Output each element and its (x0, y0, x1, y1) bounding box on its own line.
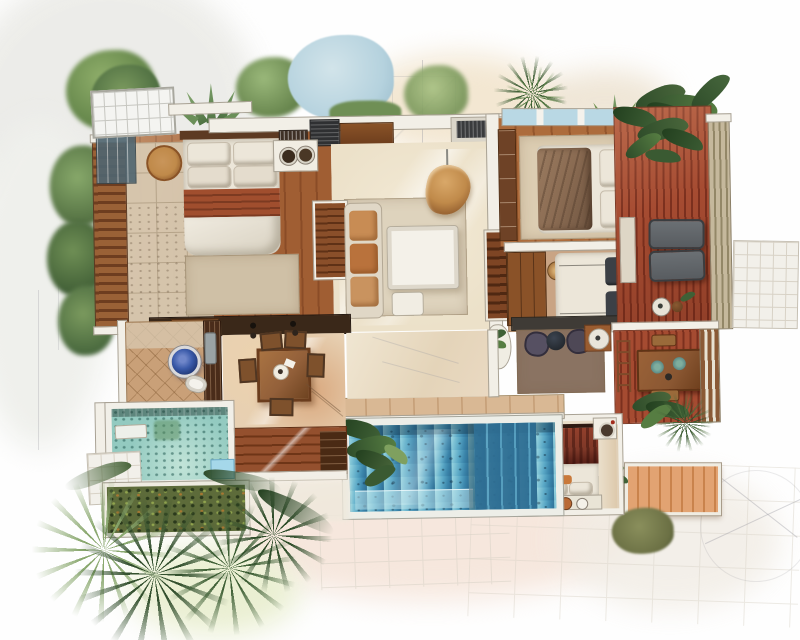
tree (404, 65, 469, 122)
cabana-tap-dot (611, 420, 615, 424)
bed-pillow (187, 166, 231, 189)
plan (0, 0, 800, 640)
bed-duvet (184, 216, 281, 256)
console-knob (250, 323, 256, 329)
ottoman (392, 292, 424, 317)
bedroom2-skylight-band (502, 109, 624, 125)
lounger (649, 219, 705, 249)
ladder-rungs (616, 340, 631, 392)
dining-chair (306, 353, 325, 378)
sofa-cushion (350, 276, 379, 306)
screen-cap (706, 114, 730, 121)
corridor-floor (346, 330, 491, 399)
ceiling-knob (250, 333, 256, 339)
bedroom3-wardrobe (507, 252, 546, 325)
deck-dark-steps (320, 431, 347, 471)
name-plaque (280, 131, 307, 140)
green-mat (154, 420, 180, 440)
slatted-screen (709, 120, 733, 328)
table-bowl (665, 373, 672, 380)
corridor-wall (488, 330, 498, 396)
window-bay (97, 135, 136, 184)
blanket-folds (539, 150, 590, 229)
bed-pillow (233, 165, 277, 188)
louvered-window (313, 201, 348, 280)
coffee-table (386, 225, 459, 290)
dining-table (637, 349, 704, 392)
bed-stripe-blanket (184, 188, 280, 218)
cabana-pillow (569, 482, 593, 496)
ceiling-knob (292, 330, 298, 336)
bed-pillow (187, 142, 231, 167)
table-plate-dot (278, 369, 283, 374)
dining-chair (259, 331, 283, 351)
lounger (649, 249, 706, 282)
side-table-dot (595, 336, 600, 341)
gray-bench (205, 333, 216, 363)
skylight-grid-panel (90, 86, 176, 138)
dining-chair (238, 358, 258, 383)
master-rug (185, 254, 300, 316)
dining-chair (269, 398, 293, 416)
pool-shallow-ledge (355, 489, 473, 510)
olive-tree (611, 507, 674, 554)
floor-plan-illustration (0, 0, 800, 640)
deck-table-dot (658, 303, 663, 308)
towel-ledge (115, 424, 148, 440)
bedroom2-closet (499, 130, 517, 240)
sofa-cushion (350, 243, 379, 273)
console-knob (290, 321, 296, 327)
pool-steps (474, 423, 537, 510)
sofa-cushion (349, 210, 378, 240)
dining-bench (652, 335, 675, 345)
bed-pillow (233, 141, 277, 166)
deck-white-board (620, 218, 635, 282)
tiled-patio (733, 241, 798, 328)
